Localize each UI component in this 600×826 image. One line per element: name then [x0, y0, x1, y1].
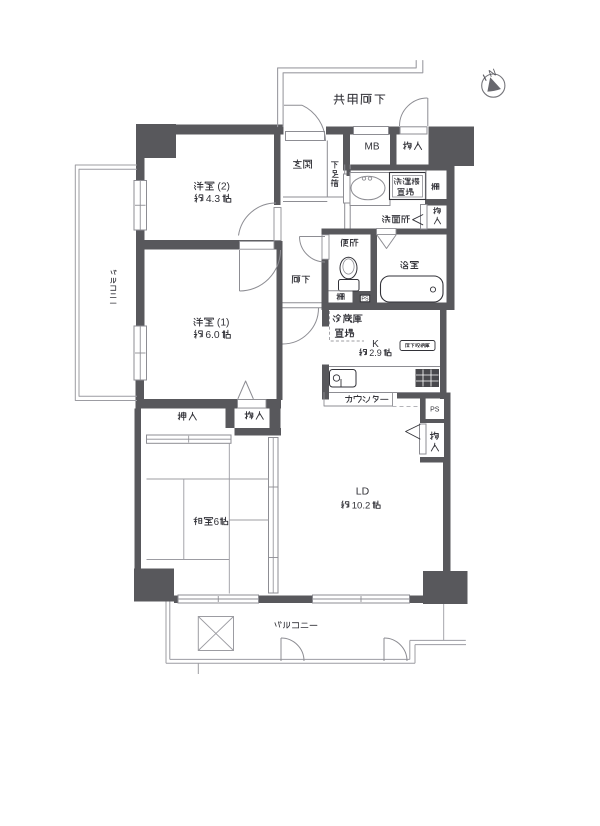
svg-text:6.0: 6.0 [205, 330, 220, 341]
svg-text:(2): (2) [217, 182, 230, 193]
svg-text:PS: PS [361, 297, 369, 303]
svg-text:N: N [487, 67, 498, 80]
svg-text:MB: MB [365, 141, 380, 152]
svg-text:(1): (1) [217, 318, 230, 329]
svg-text:4.3: 4.3 [206, 194, 221, 205]
svg-text:PS: PS [430, 407, 440, 414]
svg-text:10.2: 10.2 [352, 500, 371, 511]
svg-text:6: 6 [214, 517, 220, 528]
svg-text:2.9: 2.9 [369, 348, 382, 358]
svg-text:LD: LD [356, 486, 370, 498]
